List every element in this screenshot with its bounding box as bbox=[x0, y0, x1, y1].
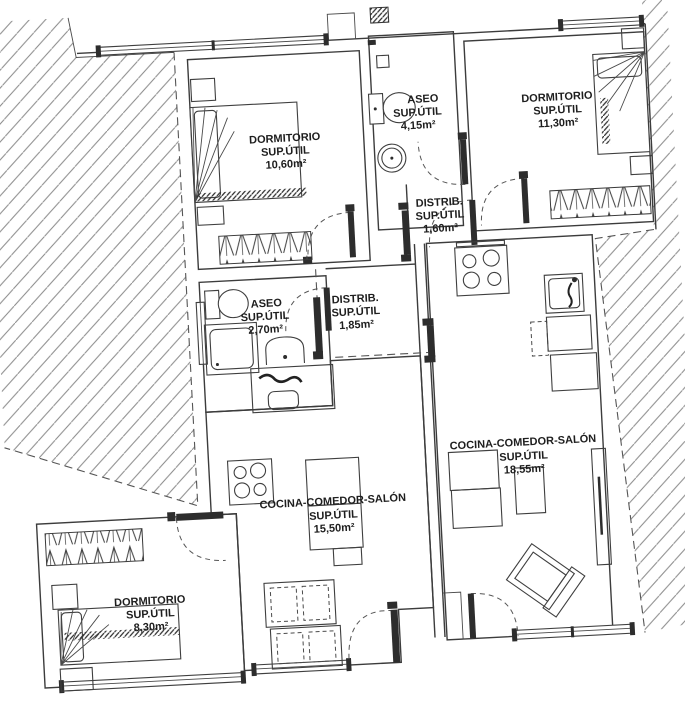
room-sup: SUP.ÚTIL bbox=[533, 102, 583, 118]
faucet-icon bbox=[568, 283, 573, 307]
faucet-icon bbox=[259, 373, 301, 384]
door-leaf bbox=[348, 211, 356, 257]
washbasin-round-icon bbox=[377, 143, 406, 172]
room-name: COCINA-COMEDOR-SALÓN bbox=[259, 491, 406, 512]
window-salon-right bbox=[512, 622, 636, 641]
nightstand-icon bbox=[52, 584, 78, 609]
door-salon-right-south bbox=[468, 591, 518, 638]
boiler-icon bbox=[376, 55, 389, 68]
room-area: 18,55m² bbox=[504, 463, 546, 477]
chair-icon bbox=[333, 547, 362, 565]
room-area: 15,50m² bbox=[313, 522, 355, 536]
room-name: DORMITORIO bbox=[249, 131, 321, 147]
door-aseo-left bbox=[284, 288, 332, 333]
bed-icon bbox=[591, 28, 653, 177]
room-area: 1,85m² bbox=[339, 318, 375, 332]
room-sup: SUP.ÚTIL bbox=[240, 309, 290, 325]
room-area: 8,30m² bbox=[133, 620, 169, 634]
room-name: ASEO bbox=[250, 297, 282, 311]
label-distrib-left: DISTRIB. SUP.ÚTIL 1,85m² bbox=[331, 292, 382, 333]
nightstand-icon bbox=[621, 28, 644, 49]
room-name: DORMITORIO bbox=[521, 90, 593, 106]
kitchen-sink-icon bbox=[544, 273, 584, 313]
door-entry-left bbox=[309, 269, 324, 359]
party-wall bbox=[414, 244, 435, 637]
room-name: ASEO bbox=[407, 93, 439, 107]
stove-icon bbox=[228, 459, 274, 505]
room-sup: SUP.ÚTIL bbox=[331, 304, 381, 320]
pedestal-sink-icon bbox=[265, 336, 304, 365]
room-area: 4,15m² bbox=[400, 119, 436, 133]
wardrobe-icon bbox=[550, 186, 651, 219]
wardrobe-icon bbox=[45, 529, 144, 566]
room-area: 11,30m² bbox=[538, 116, 579, 130]
floor-plan-drawing: DORMITORIO SUP.ÚTIL 10,60m² ASEO SUP.ÚTI… bbox=[0, 0, 685, 706]
room-area: 10,60m² bbox=[265, 158, 307, 172]
counter-cabinet-icon bbox=[546, 315, 592, 351]
door-bedroom-topright bbox=[479, 171, 531, 225]
room-name: COCINA-COMEDOR-SALÓN bbox=[449, 432, 596, 453]
room-name: DISTRIB. bbox=[331, 292, 379, 306]
label-dormitorio-topright: DORMITORIO SUP.ÚTIL 11,30m² bbox=[521, 90, 595, 132]
shaft-duct bbox=[370, 7, 389, 23]
room-sup: SUP.ÚTIL bbox=[499, 448, 549, 464]
room-sup: SUP.ÚTIL bbox=[415, 207, 465, 223]
counter-cabinet-icon bbox=[550, 353, 598, 391]
label-salon-right: COCINA-COMEDOR-SALÓN SUP.ÚTIL 18,55m² bbox=[449, 432, 598, 480]
nightstand-icon bbox=[190, 78, 215, 101]
left-neighbor-hatch bbox=[0, 12, 198, 515]
armchair-icon bbox=[505, 540, 584, 617]
stove-icon bbox=[454, 240, 509, 296]
armchair-icon bbox=[264, 580, 336, 628]
doors bbox=[148, 129, 553, 674]
door-swing-arc bbox=[306, 212, 353, 259]
room-name: DISTRIB. bbox=[415, 195, 463, 209]
label-salon-left: COCINA-COMEDOR-SALÓN SUP.ÚTIL 15,50m² bbox=[259, 491, 408, 539]
door-corridor bbox=[398, 202, 411, 261]
room-sup: SUP.ÚTIL bbox=[126, 606, 176, 622]
appliance-dashed-icon bbox=[531, 321, 549, 356]
room-sup: SUP.ÚTIL bbox=[261, 143, 311, 159]
label-distrib-right: DISTRIB. SUP.ÚTIL 1,60m² bbox=[415, 195, 466, 236]
room-sup: SUP.ÚTIL bbox=[393, 104, 443, 120]
wardrobe-icon bbox=[219, 231, 312, 264]
room-area: 1,60m² bbox=[423, 222, 459, 236]
facade-niche bbox=[327, 13, 355, 40]
room-sup: SUP.ÚTIL bbox=[309, 507, 359, 523]
room-area: 2,70m² bbox=[248, 323, 284, 337]
door-salon-left-south bbox=[346, 601, 400, 665]
nightstand-icon bbox=[197, 206, 224, 225]
floor-plan-page: DORMITORIO SUP.ÚTIL 10,60m² ASEO SUP.ÚTI… bbox=[0, 0, 685, 706]
